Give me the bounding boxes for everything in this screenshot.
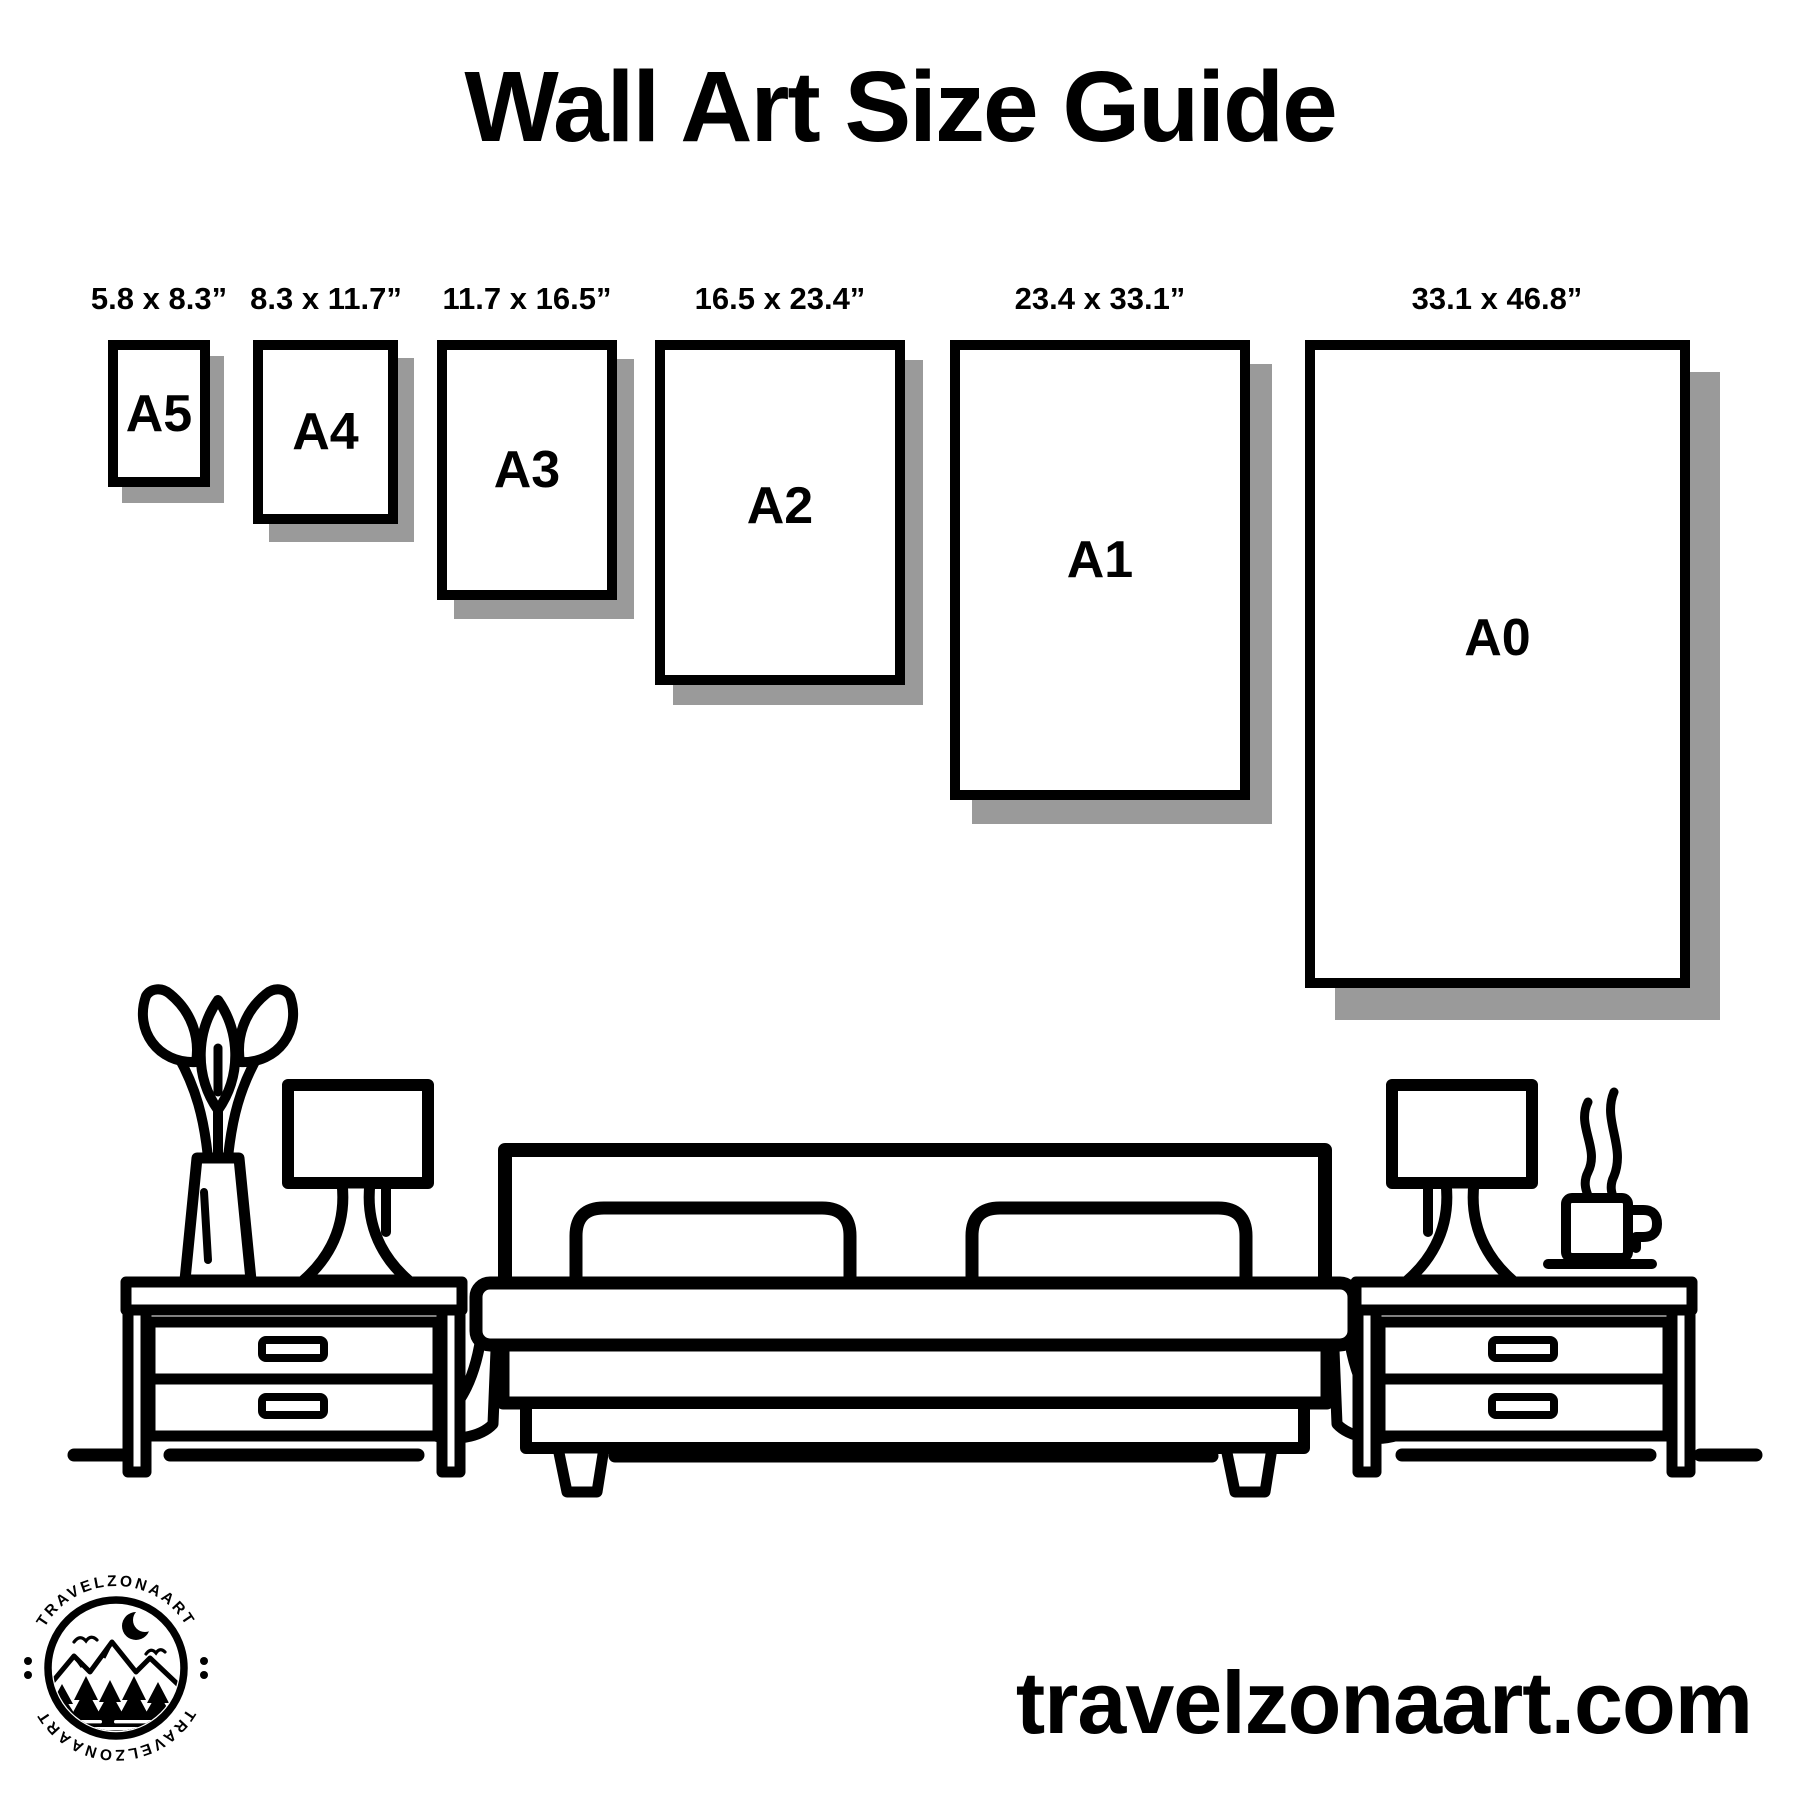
drawer-handle — [1492, 1397, 1554, 1415]
wall-art-size-guide-poster: Wall Art Size Guide 5.8 x 8.3” A5 8.3 x … — [0, 0, 1800, 1800]
bed-base — [526, 1403, 1304, 1448]
leaf-icon — [239, 989, 293, 1062]
website-url: travelzonaart.com — [1016, 1652, 1752, 1754]
vase-icon — [143, 989, 293, 1280]
lamp-stem — [304, 1183, 408, 1280]
bedroom-illustration — [0, 0, 1800, 1800]
drawer-handle — [262, 1397, 324, 1415]
nightstand-leg — [1358, 1310, 1376, 1472]
steam-icon — [1585, 1102, 1592, 1204]
blanket-box — [503, 1345, 1327, 1403]
drawer-handle — [262, 1340, 324, 1358]
mug-body — [1566, 1198, 1628, 1258]
leaf-icon — [143, 989, 197, 1062]
mattress-band — [476, 1283, 1354, 1345]
bed-leg-right — [1226, 1448, 1272, 1492]
coffee-cup-icon — [1548, 1092, 1657, 1264]
lamp-left-icon — [288, 1085, 428, 1280]
lamp-right-icon — [1392, 1085, 1532, 1280]
nightstand-left-icon — [126, 1282, 462, 1472]
steam-icon — [1611, 1092, 1618, 1208]
bed-icon — [429, 1150, 1401, 1492]
nightstand-right-icon — [1356, 1282, 1692, 1472]
nightstand-leg — [442, 1310, 460, 1472]
bed-leg-left — [558, 1448, 604, 1492]
vase-body — [185, 1158, 251, 1280]
lampshade — [1392, 1085, 1532, 1183]
lampshade — [288, 1085, 428, 1183]
nightstand-leg — [1672, 1310, 1690, 1472]
brand-logo: TRAVELZONAART TRAVELZONAART — [18, 1570, 214, 1766]
drawer-handle — [1492, 1340, 1554, 1358]
nightstand-leg — [128, 1310, 146, 1472]
